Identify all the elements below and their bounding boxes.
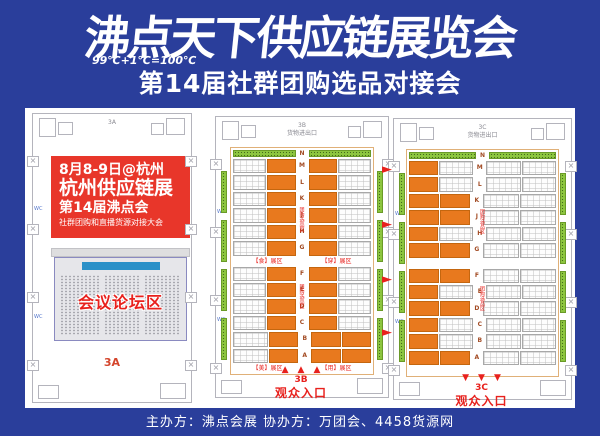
organizer-bar: 主办方：沸点会展 协办方：万团会、4458货源网 [0,411,600,430]
poster-subtitle: 第14届社群团购选品对接会 [0,64,600,100]
booth [520,210,556,224]
section-label [409,260,483,267]
outline-room [39,118,56,137]
section-label-row: 【食】展区【穿】展区 [233,258,371,265]
hall-3c-grid: NMLKJHGFEDCBA团购选品区团购选品区 [406,149,559,377]
booth [440,351,470,365]
green-side-booths [560,173,566,215]
booth [409,177,438,191]
booth [338,241,371,255]
booth [233,267,266,281]
outline-room [160,383,186,399]
booth [338,225,371,239]
booth [486,285,520,299]
promo-edition: 第14届沸点会 [59,200,190,216]
booth [267,267,295,281]
outline-room [531,128,544,140]
x-column-icon: × [27,156,39,167]
row-letter: G [297,245,308,251]
booth [439,227,473,241]
booth-row: L [233,175,371,189]
row-letter: M [474,165,485,171]
booth [267,175,295,189]
booth [342,349,371,363]
booth [520,351,556,365]
booth [440,301,470,315]
down-arrows-icon: ▼▼▼ [393,374,570,383]
green-side-booths [221,269,227,311]
booth [233,332,268,346]
stage-bar [82,262,160,270]
booth [439,318,473,332]
booth-row: M [233,159,371,173]
booth [483,301,519,315]
entrance-hall-no: 3B [215,375,387,386]
booth [309,225,337,239]
booth-row: A [233,349,371,363]
booth [233,299,266,313]
expo-poster: 沸点天下供应链展览会 99℃+1℃=100℃ 第14届社群团购选品对接会 3A … [0,0,600,436]
green-side-booths [221,171,227,213]
booth-row: B [233,332,371,346]
x-column-icon: × [27,224,39,235]
green-side-booths [221,220,227,262]
aisle-note: 团购选品区 [479,209,486,234]
conference-label: 会议论坛区 [55,289,186,313]
promo-title: 杭州供应链展 [59,178,190,200]
booth [338,299,371,313]
booth [233,349,268,363]
row-letter: C [474,322,485,328]
row-letter: M [297,163,308,169]
booth [486,334,520,348]
x-column-icon: × [185,156,197,167]
booth [309,283,337,297]
booth [309,159,337,173]
wc-label: WC [34,314,42,320]
right-arrow-icon: ► [382,218,392,231]
booth [522,177,556,191]
booth-row: K [409,194,556,208]
booth [338,283,371,297]
booth [267,316,295,330]
section-label: 【穿】展区 [302,258,371,265]
x-column-icon: × [185,292,197,303]
booth [233,208,266,222]
booth [486,227,520,241]
entrance-hall-no: 3C [393,383,570,394]
booth [522,285,556,299]
booth [338,267,371,281]
booth [338,208,371,222]
booth [522,161,556,175]
row-letter: G [471,247,482,253]
booth [483,243,519,257]
booth [309,316,337,330]
row-letter: B [299,336,310,342]
booth [267,299,295,313]
row-letter: L [297,180,308,186]
booth [309,208,337,222]
booth [233,159,266,173]
x-column-icon: × [565,161,577,172]
outline-room [166,118,185,135]
hall-3a-bottom-label: 3A [33,356,191,369]
row-letter: B [474,338,485,344]
booth [409,334,438,348]
booth [409,210,439,224]
booth-row: F [233,267,371,281]
booth-row: M [409,161,556,175]
booth [486,161,520,175]
hall-3c: 3C 货物进出口 NMLKJHGFEDCBA团购选品区团购选品区 ×××××××… [393,118,572,400]
booth [267,192,295,206]
booth-row: C [409,318,556,332]
green-booth [309,150,372,157]
booth-row: L [409,177,556,191]
green-side-booths [560,320,566,362]
outline-room [419,127,434,140]
floorplan-panel: 3A 8月8-9日@杭州 杭州供应链展 第14届沸点会 社群团购和直播货源对接大… [25,108,575,408]
row-letter: L [474,182,485,188]
poster-title: 沸点天下供应链展览会 [0,2,600,68]
booth [440,194,470,208]
booth [309,175,337,189]
outline-room [151,123,164,135]
x-column-icon: × [565,229,577,240]
booth [338,159,371,173]
booth [338,192,371,206]
right-arrow-icon: ► [382,163,392,176]
booth [483,194,519,208]
hall-3b-entrance: ▲▲▲ 3B 观众入口 [215,366,387,400]
entrance-label: 观众入口 [215,386,387,400]
booth [311,349,340,363]
booth-row: C [233,316,371,330]
booth-row: F [409,269,556,283]
hall-3a: 3A 8月8-9日@杭州 杭州供应链展 第14届沸点会 社群团购和直播货源对接大… [32,113,192,403]
booth [409,243,439,257]
booth [439,161,473,175]
promo-box: 8月8-9日@杭州 杭州供应链展 第14届沸点会 社群团购和直播货源对接大会 [51,156,190,238]
booth [522,227,556,241]
promo-date: 8月8-9日@杭州 [59,162,190,178]
booth [522,318,556,332]
row-letter: C [297,320,308,326]
booth [409,351,439,365]
booth [233,175,266,189]
booth [233,225,266,239]
booth [483,351,519,365]
row-letter: F [471,273,482,279]
green-side-booths [399,173,405,215]
booth [342,332,371,346]
outline-room [222,121,239,140]
booth [440,243,470,257]
aisle-note: 团购选品区 [299,284,306,309]
entrance-label: 观众入口 [393,394,570,408]
booth [309,192,337,206]
green-booth [409,152,476,159]
right-arrow-icon: ► [382,273,392,286]
booth-row: K [233,192,371,206]
booth [409,301,439,315]
promo-desc: 社群团购和直播货源对接大会 [59,218,190,227]
booth-row: G [233,241,371,255]
row-letter: K [471,198,482,204]
booth [269,332,298,346]
row-letter: N [297,151,308,157]
booth [233,192,266,206]
booth [520,243,556,257]
booth [440,269,470,283]
section-label: 【食】展区 [233,258,302,265]
booth [520,301,556,315]
outline-room [400,123,417,142]
hall-3b-grid: NMLKJHG【食】展区【穿】展区FEDCBA【美】展区【用】展区团购选品区团购… [230,147,374,375]
outline-room [348,126,361,138]
booth [233,283,266,297]
green-booth-strip: N [233,150,371,157]
row-letter: A [471,355,482,361]
booth [269,349,298,363]
booth [520,269,556,283]
hall-3c-entrance: ▼▼▼ 3C 观众入口 [393,374,570,408]
booth [309,299,337,313]
outline-room [241,125,256,138]
booth [409,194,439,208]
booth [233,316,266,330]
booth [311,332,340,346]
booth [522,334,556,348]
booth [233,241,266,255]
x-column-icon: × [27,292,39,303]
row-letter: K [297,196,308,202]
right-arrow-icon: ► [382,326,392,339]
x-column-icon: × [27,360,39,371]
booth [267,241,295,255]
booth [267,283,295,297]
row-letter: A [299,353,310,359]
booth [409,318,438,332]
booth [486,177,520,191]
booth-row: G [409,243,556,257]
green-side-booths [399,271,405,313]
green-side-booths [221,318,227,360]
green-side-booths [377,171,383,213]
booth-row: A [409,351,556,365]
x-column-icon: × [185,360,197,371]
booth [409,269,439,283]
booth [338,316,371,330]
aisle-note: 团购选品区 [479,286,486,311]
outline-room [363,121,382,138]
booth [409,227,438,241]
outline-room [58,122,73,135]
green-side-booths [560,271,566,313]
row-letter: F [297,271,308,277]
outline-room [38,385,59,399]
conference-area: 会议论坛区 [54,257,187,341]
booth [267,208,295,222]
outline-room [546,123,565,140]
green-side-booths [560,222,566,264]
booth [486,318,520,332]
green-booth [489,152,556,159]
booth [409,285,438,299]
hall-3b: 3B 货物进出口 NMLKJHG【食】展区【穿】展区FEDCBA【美】展区【用】… [215,116,389,398]
booth [267,159,295,173]
green-booth [233,150,296,157]
booth [483,210,519,224]
section-label [483,260,557,267]
green-side-booths [399,320,405,362]
booth [439,334,473,348]
booth-row: B [409,334,556,348]
booth [439,177,473,191]
x-column-icon: × [210,159,222,170]
green-booth-strip: N [409,152,556,159]
booth [309,241,337,255]
row-letter: N [477,153,488,159]
booth [483,269,519,283]
booth [439,285,473,299]
aisle-note: 团购选品区 [299,207,306,232]
stage-platform [51,248,190,257]
booth [267,225,295,239]
booth [338,175,371,189]
booth [520,194,556,208]
section-label-row [409,260,556,267]
booth [309,267,337,281]
green-side-booths [399,222,405,264]
x-column-icon: × [565,297,577,308]
wc-label: WC [34,206,42,212]
x-column-icon: × [185,224,197,235]
up-arrows-icon: ▲▲▲ [215,366,387,375]
booth [409,161,438,175]
booth [440,210,470,224]
